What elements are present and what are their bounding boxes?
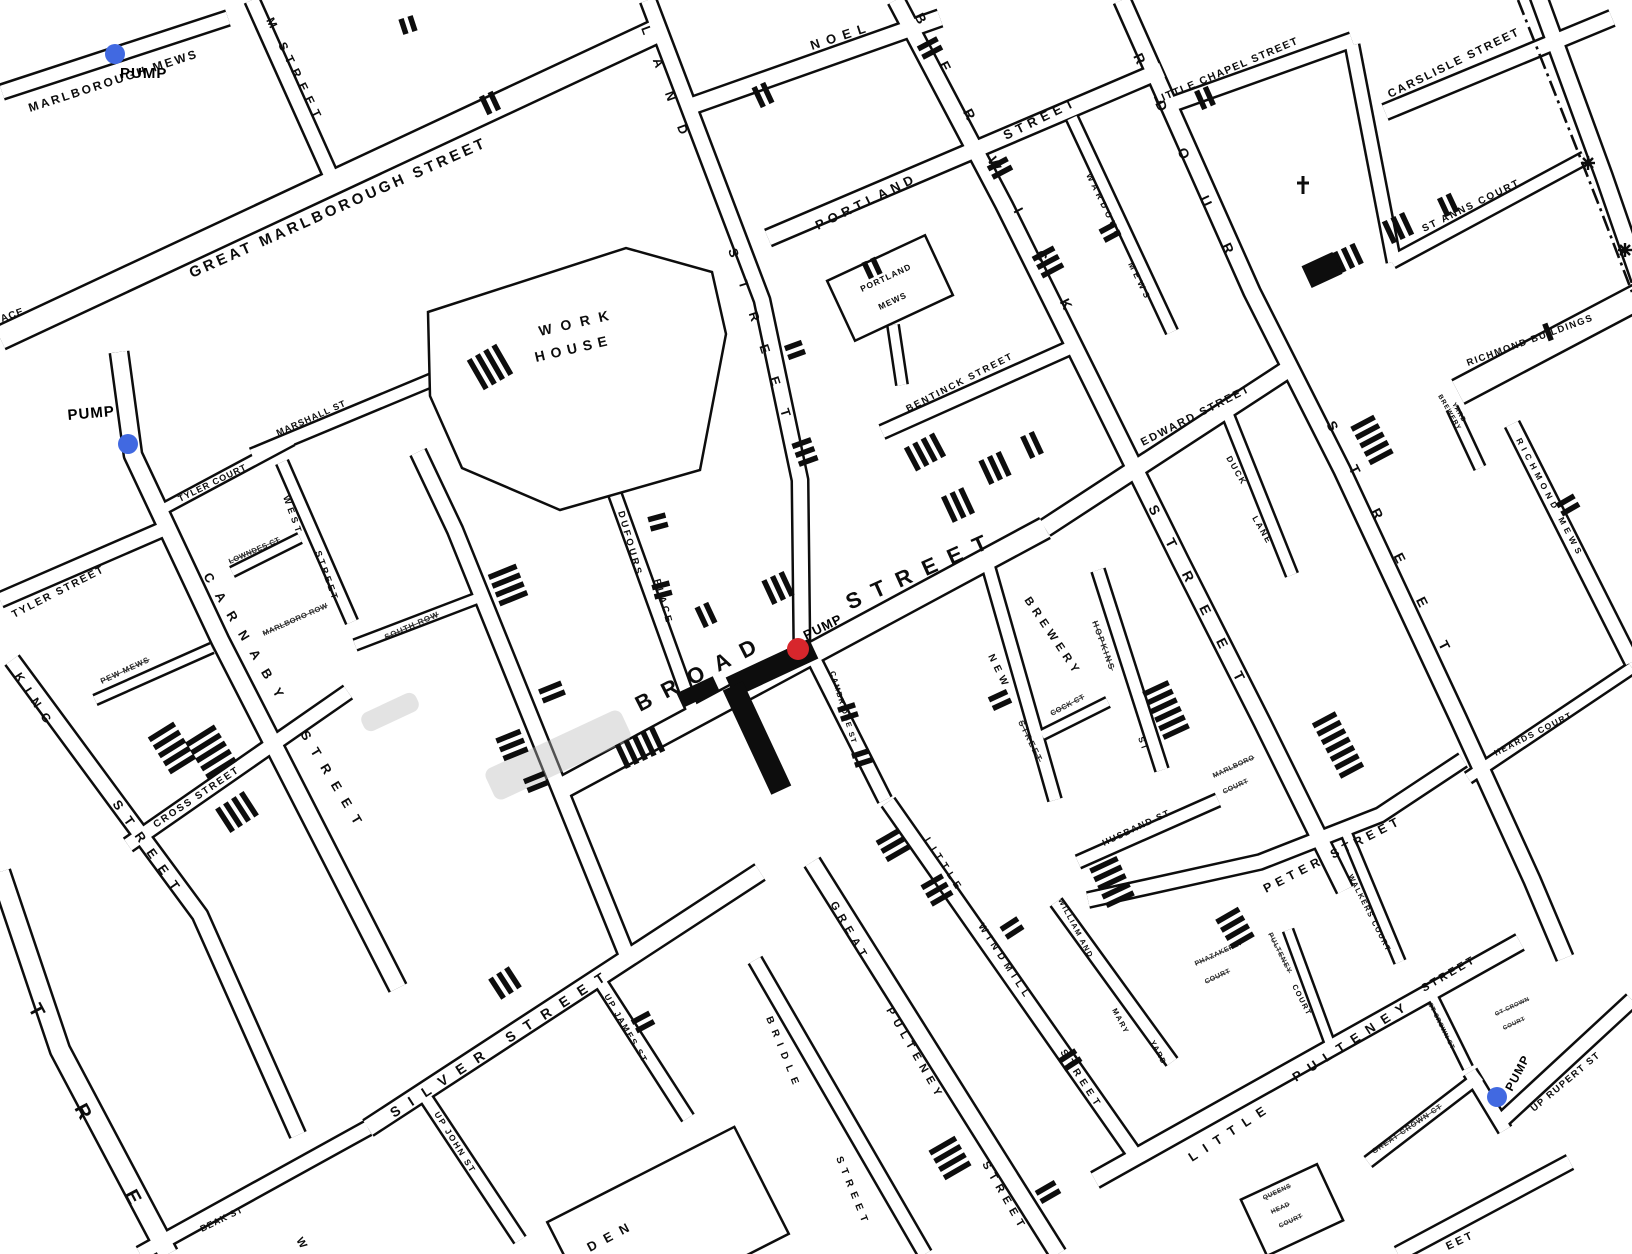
pump-marlborough-mews-marker[interactable]	[105, 44, 125, 64]
snow-cholera-map: MARLBOROUGH MEWSPUMPM STREETGREAT MARLBO…	[0, 0, 1632, 1254]
cholera-map-canvas[interactable]: MARLBOROUGH MEWSPUMPM STREETGREAT MARLBO…	[0, 0, 1632, 1254]
pump-broad-street-marker[interactable]	[787, 638, 809, 660]
pump-rupert-street-marker[interactable]	[1487, 1087, 1507, 1107]
pump-carnaby-marker[interactable]	[118, 434, 138, 454]
boundary-star-icon	[1581, 156, 1595, 170]
pump-label: PUMP	[120, 65, 167, 82]
boundary-star-icon	[1618, 243, 1632, 257]
